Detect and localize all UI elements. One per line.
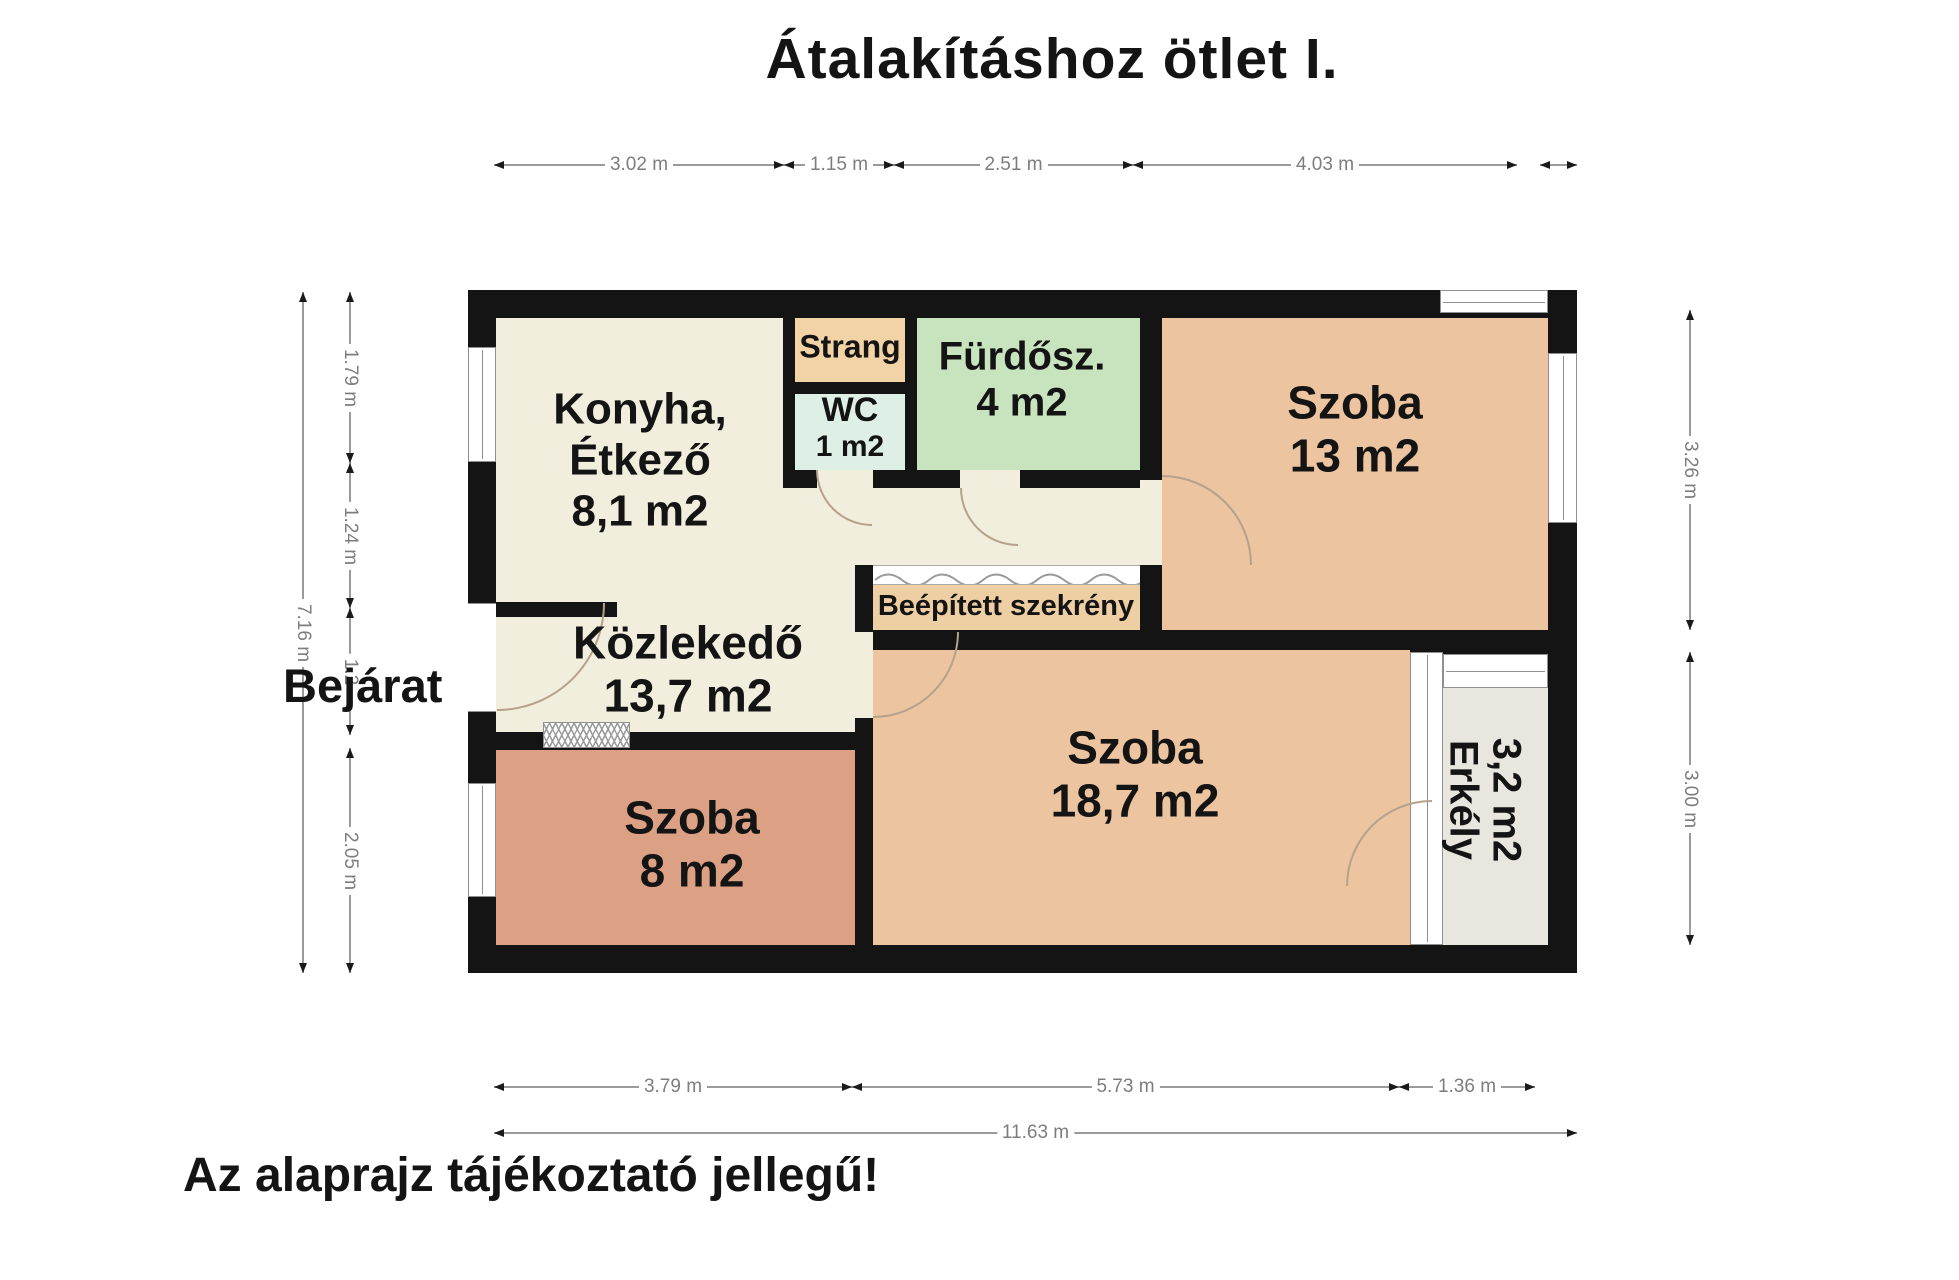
footer-note: Az alaprajz tájékoztató jellegű!: [183, 1148, 879, 1203]
dimension-line: [349, 292, 351, 463]
dimension-arrow-down: [346, 453, 354, 463]
label-wc: WC 1 m2: [816, 391, 884, 465]
label-kitchen: Konyha, Étkező 8,1 m2: [553, 383, 727, 536]
bathroom-name: Fürdősz.: [939, 334, 1106, 380]
dimension-label: 7.16 m: [292, 598, 314, 666]
window-room13-top: [1440, 290, 1548, 313]
dimension-line: [349, 463, 351, 608]
dimension-arrow-down: [1686, 620, 1694, 630]
dimension-arrow-left: [1540, 161, 1550, 169]
dimension-arrow-right: [842, 1083, 852, 1091]
dimension-label: 3.02 m: [605, 154, 673, 176]
window-balcony-door-wall: [1410, 652, 1443, 945]
wardrobe-name: Beépített szekrény: [878, 590, 1134, 624]
dimension-line: [494, 1132, 1577, 1134]
label-hallway: Közlekedő 13,7 m2: [573, 617, 803, 724]
dimension-arrow-down: [1686, 935, 1694, 945]
dimension-line: [494, 164, 784, 166]
vent-grille: [543, 722, 630, 748]
dimension-line: [1540, 164, 1577, 166]
dimension-arrow-right: [1389, 1083, 1399, 1091]
window-balcony-railing: [1443, 654, 1548, 688]
dimension-arrow-down: [346, 725, 354, 735]
dimension-arrow-right: [1507, 161, 1517, 169]
entrance-door-opening: [468, 603, 496, 712]
wardrobe-front-wave: [873, 565, 1140, 585]
label-room8: Szoba 8 m2: [624, 792, 759, 899]
label-room187: Szoba 18,7 m2: [1051, 722, 1220, 829]
dimension-line: [1689, 652, 1691, 945]
label-shaft: Strang: [799, 328, 900, 365]
label-wardrobe: Beépített szekrény: [878, 590, 1134, 624]
kitchen-name-line1: Konyha,: [553, 383, 727, 434]
dimension-line: [894, 164, 1133, 166]
dimension-label: 1.15 m: [805, 154, 873, 176]
dimension-arrow-up: [346, 608, 354, 618]
dimension-arrow-right: [1567, 1129, 1577, 1137]
dimension-label: 1.79 m: [339, 343, 361, 411]
dimension-line: [1399, 1086, 1535, 1088]
dimension-arrow-right: [774, 161, 784, 169]
bathroom-area: 4 m2: [939, 380, 1106, 426]
window-kitchen-left: [468, 347, 496, 462]
dimension-arrow-right: [1567, 161, 1577, 169]
dimension-arrow-left: [894, 161, 904, 169]
dimension-arrow-up: [346, 292, 354, 302]
dimension-label: 3.26 m: [1679, 436, 1701, 504]
dimension-line: [302, 292, 304, 973]
dimension-line: [784, 164, 894, 166]
window-room13-right: [1548, 353, 1577, 523]
room13-name: Szoba: [1287, 377, 1422, 430]
dimension-label: 1.24 m: [339, 501, 361, 569]
dimension-label: 3.79 m: [639, 1076, 707, 1098]
dimension-arrow-left: [852, 1083, 862, 1091]
dimension-arrow-up: [346, 463, 354, 473]
hallway-name: Közlekedő: [573, 617, 803, 670]
dimension-arrow-left: [494, 1129, 504, 1137]
dimension-line: [349, 748, 351, 973]
dimension-label: 1.36 m: [1433, 1076, 1501, 1098]
dimension-arrow-right: [1123, 161, 1133, 169]
door-opening-bathroom: [960, 470, 1020, 488]
dimension-label: 5.73 m: [1091, 1076, 1159, 1098]
kitchen-name-line2: Étkező: [553, 434, 727, 485]
floor-plan: Konyha, Étkező 8,1 m2 Strang WC 1 m2 Für…: [468, 290, 1577, 973]
dimension-arrow-up: [1686, 310, 1694, 320]
label-balcony-area: 3,2 m2: [1484, 738, 1529, 863]
dimension-arrow-down: [346, 598, 354, 608]
room187-name: Szoba: [1051, 722, 1220, 775]
kitchen-area: 8,1 m2: [553, 486, 727, 537]
dimension-arrow-down: [346, 963, 354, 973]
label-balcony-name: Erkély: [1441, 740, 1486, 860]
label-bathroom: Fürdősz. 4 m2: [939, 334, 1106, 427]
dimension-arrow-down: [299, 963, 307, 973]
dimension-label: 3.00 m: [1679, 764, 1701, 832]
dimension-arrow-right: [884, 161, 894, 169]
entrance-label: Bejárat: [283, 658, 442, 713]
wc-name: WC: [816, 391, 884, 430]
label-room13: Szoba 13 m2: [1287, 377, 1422, 484]
dimension-line: [1689, 310, 1691, 630]
window-room8-left: [468, 783, 496, 897]
dimension-label: 2.05 m: [339, 826, 361, 894]
dimension-label: 2.51 m: [979, 154, 1047, 176]
wc-area: 1 m2: [816, 430, 884, 465]
door-opening-room13: [1140, 480, 1162, 565]
room187-area: 18,7 m2: [1051, 775, 1220, 828]
dimension-arrow-left: [494, 1083, 504, 1091]
dimension-arrow-up: [1686, 652, 1694, 662]
dimension-label: 4.03 m: [1291, 154, 1359, 176]
dimension-line: [1133, 164, 1517, 166]
dimension-line: [494, 1086, 852, 1088]
page-title: Átalakításhoz ötlet I.: [765, 26, 1338, 92]
dimension-arrow-left: [494, 161, 504, 169]
floor-plan-page: Átalakításhoz ötlet I.: [0, 0, 1959, 1280]
dimension-arrow-left: [1399, 1083, 1409, 1091]
shaft-name: Strang: [799, 328, 900, 365]
room13-area: 13 m2: [1287, 430, 1422, 483]
dimension-arrow-left: [784, 161, 794, 169]
dimension-arrow-up: [299, 292, 307, 302]
dimension-label: 11.63 m: [997, 1122, 1074, 1144]
hallway-area: 13,7 m2: [573, 670, 803, 723]
dimension-arrow-left: [1133, 161, 1143, 169]
room8-name: Szoba: [624, 792, 759, 845]
dimension-arrow-up: [346, 748, 354, 758]
room8-area: 8 m2: [624, 845, 759, 898]
wave-pattern: [873, 566, 1140, 585]
dimension-line: [852, 1086, 1399, 1088]
dimension-arrow-right: [1525, 1083, 1535, 1091]
door-opening-room187: [855, 632, 873, 718]
